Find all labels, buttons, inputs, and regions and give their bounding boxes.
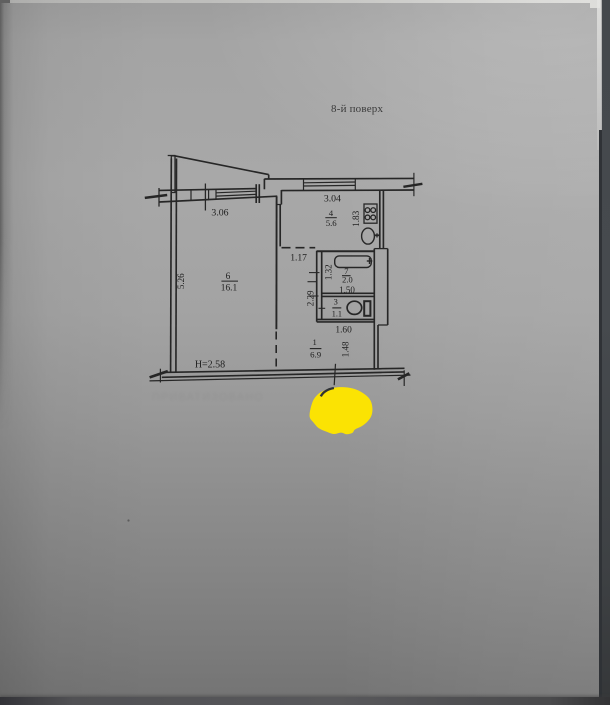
- svg-text:1.60: 1.60: [335, 325, 352, 335]
- svg-text:1.32: 1.32: [323, 264, 333, 280]
- svg-text:3.06: 3.06: [211, 208, 228, 219]
- svg-text:ПРИВАТИЗОВАНО: ПРИВАТИЗОВАНО: [152, 391, 264, 403]
- svg-text:1.50: 1.50: [339, 285, 355, 295]
- svg-text:3.04: 3.04: [324, 193, 341, 204]
- svg-text:6: 6: [226, 272, 231, 282]
- svg-text:3: 3: [334, 297, 338, 306]
- svg-text:1.17: 1.17: [290, 253, 307, 264]
- svg-text:5.6: 5.6: [326, 218, 338, 228]
- svg-text:1.48: 1.48: [341, 341, 351, 357]
- svg-text:5.26: 5.26: [176, 273, 186, 289]
- svg-text:2.0: 2.0: [342, 276, 352, 285]
- svg-text:1.83: 1.83: [351, 210, 361, 226]
- svg-text:1: 1: [313, 337, 317, 347]
- svg-text:16.1: 16.1: [221, 283, 238, 293]
- svg-text:2.29: 2.29: [305, 290, 315, 306]
- svg-text:7: 7: [344, 267, 348, 276]
- svg-text:4: 4: [329, 208, 334, 218]
- svg-text:H=2.58: H=2.58: [195, 359, 225, 370]
- svg-text:1.1: 1.1: [332, 309, 342, 318]
- svg-text:6.9: 6.9: [310, 349, 322, 359]
